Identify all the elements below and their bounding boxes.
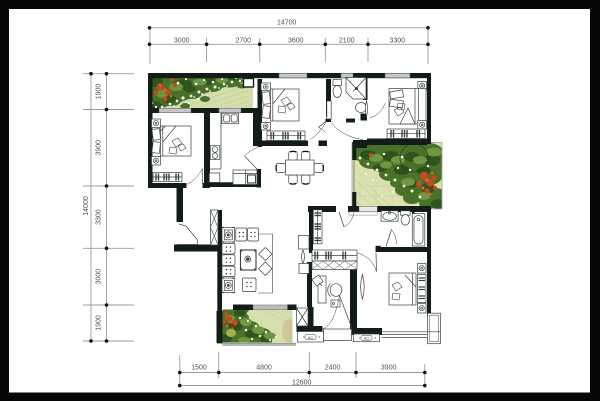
svg-text:3000: 3000 <box>174 38 190 45</box>
svg-text:3600: 3600 <box>288 38 304 45</box>
svg-text:4800: 4800 <box>256 365 272 372</box>
svg-text:3900: 3900 <box>381 365 397 372</box>
svg-text:2700: 2700 <box>236 38 252 45</box>
svg-text:1500: 1500 <box>191 365 207 372</box>
svg-text:14700: 14700 <box>277 20 297 27</box>
svg-text:3300: 3300 <box>390 38 406 45</box>
svg-text:3000: 3000 <box>96 269 103 285</box>
svg-text:AC: AC <box>364 337 370 341</box>
svg-text:2100: 2100 <box>339 38 355 45</box>
svg-text:3900: 3900 <box>96 140 103 156</box>
svg-text:14000: 14000 <box>83 196 90 216</box>
svg-text:1900: 1900 <box>96 315 103 331</box>
svg-text:12600: 12600 <box>292 380 312 387</box>
svg-text:2400: 2400 <box>325 365 341 372</box>
svg-text:1900: 1900 <box>96 84 103 100</box>
svg-text:3300: 3300 <box>96 209 103 225</box>
svg-text:AC: AC <box>308 336 314 340</box>
